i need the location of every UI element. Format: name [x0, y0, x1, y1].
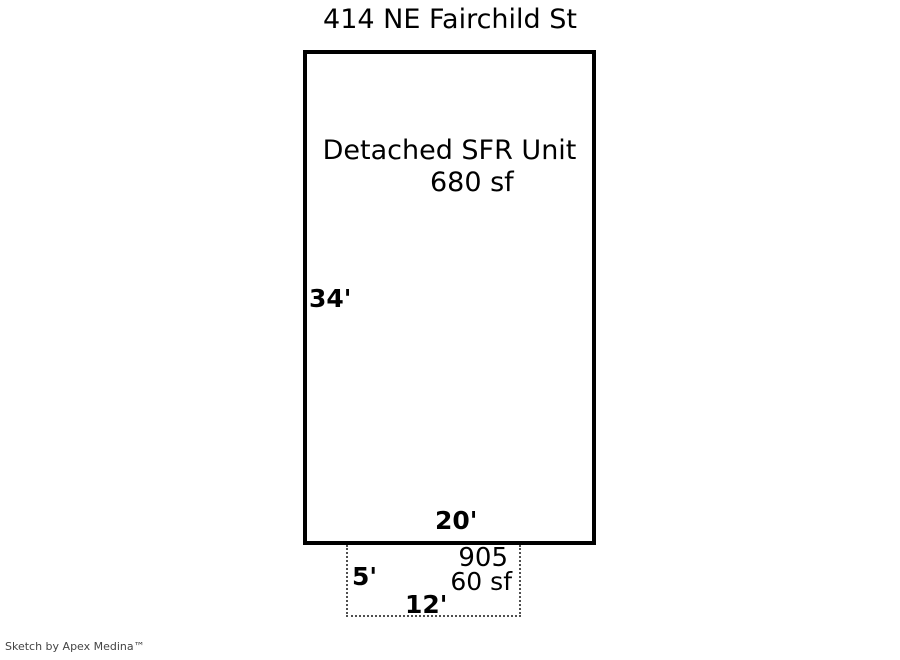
main-unit-bottom-dimension: 20' [435, 508, 477, 533]
main-unit-left-dimension: 34' [309, 286, 351, 311]
sketch-title: 414 NE Fairchild St [0, 6, 900, 33]
accessory-bottom-dimension: 12' [405, 592, 447, 617]
main-unit-area: 680 sf [430, 169, 514, 196]
main-unit-label: Detached SFR Unit [303, 137, 596, 164]
accessory-left-dimension: 5' [352, 564, 377, 589]
attribution-text: Sketch by Apex Medina™ [5, 641, 145, 652]
sketch-canvas: 414 NE Fairchild St Detached SFR Unit 68… [0, 0, 900, 660]
